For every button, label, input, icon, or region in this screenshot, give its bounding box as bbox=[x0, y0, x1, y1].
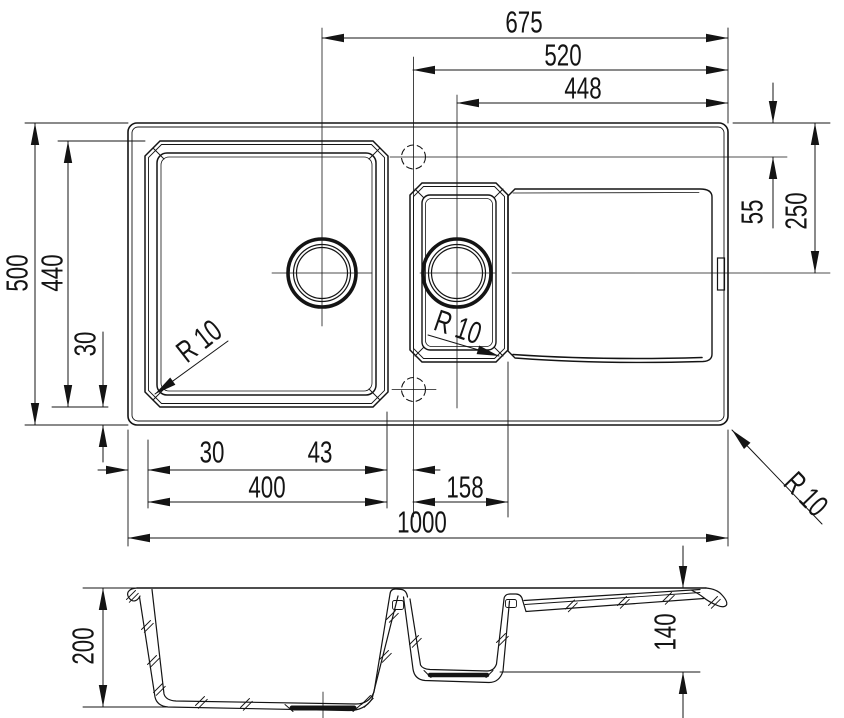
dim-label-500: 500 bbox=[2, 254, 33, 291]
drainer-area bbox=[508, 189, 712, 362]
dim-label-448: 448 bbox=[564, 73, 601, 104]
small-drain bbox=[420, 239, 495, 307]
dim-label-55: 55 bbox=[737, 200, 768, 225]
sink-technical-drawing: 675 520 448 500 440 30 55 250 30 43 400 … bbox=[0, 0, 844, 718]
section-drainer bbox=[523, 590, 705, 612]
dim-label-30-left: 30 bbox=[70, 332, 101, 357]
dim-label-440: 440 bbox=[37, 254, 68, 291]
section-main-bowl bbox=[140, 590, 399, 712]
dim-55 bbox=[769, 83, 777, 228]
dim-label-43: 43 bbox=[308, 437, 333, 468]
section-drainer-divider bbox=[504, 594, 523, 608]
dim-label-1000: 1000 bbox=[397, 507, 447, 538]
dim-label-200: 200 bbox=[68, 627, 99, 664]
plan-view bbox=[25, 28, 830, 546]
overflow-slot bbox=[718, 258, 725, 290]
dim-label-140: 140 bbox=[650, 613, 681, 650]
dim-label-520: 520 bbox=[544, 40, 581, 71]
tap-hole-bottom bbox=[392, 378, 436, 402]
dim-label-250: 250 bbox=[781, 192, 812, 229]
dim-label-675: 675 bbox=[505, 7, 542, 38]
section-left-lip bbox=[128, 588, 140, 601]
technical-drawing-canvas bbox=[0, 0, 844, 718]
main-bowl bbox=[145, 141, 388, 407]
dim-label-400: 400 bbox=[248, 472, 285, 503]
dim-label-30-bottom: 30 bbox=[200, 437, 225, 468]
section-right-lip bbox=[692, 588, 727, 607]
section-hatch-ticks bbox=[127, 591, 721, 711]
section-view bbox=[83, 546, 727, 718]
dim-label-158: 158 bbox=[446, 472, 483, 503]
